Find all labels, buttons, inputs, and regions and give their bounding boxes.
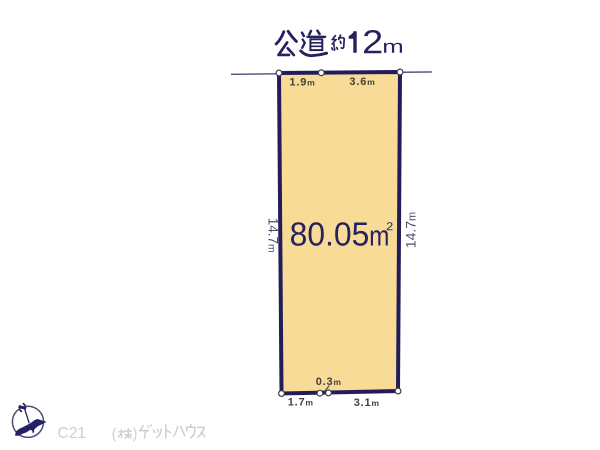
- svg-text:1.9m: 1.9m: [289, 76, 315, 88]
- svg-text:1.7m: 1.7m: [288, 396, 314, 408]
- svg-text:): ): [133, 426, 138, 442]
- svg-text:3.6m: 3.6m: [349, 76, 375, 88]
- svg-text:0.3m: 0.3m: [316, 376, 342, 388]
- svg-text:C21: C21: [58, 425, 86, 442]
- svg-text:(: (: [112, 426, 117, 442]
- svg-text:3.1m: 3.1m: [354, 397, 380, 409]
